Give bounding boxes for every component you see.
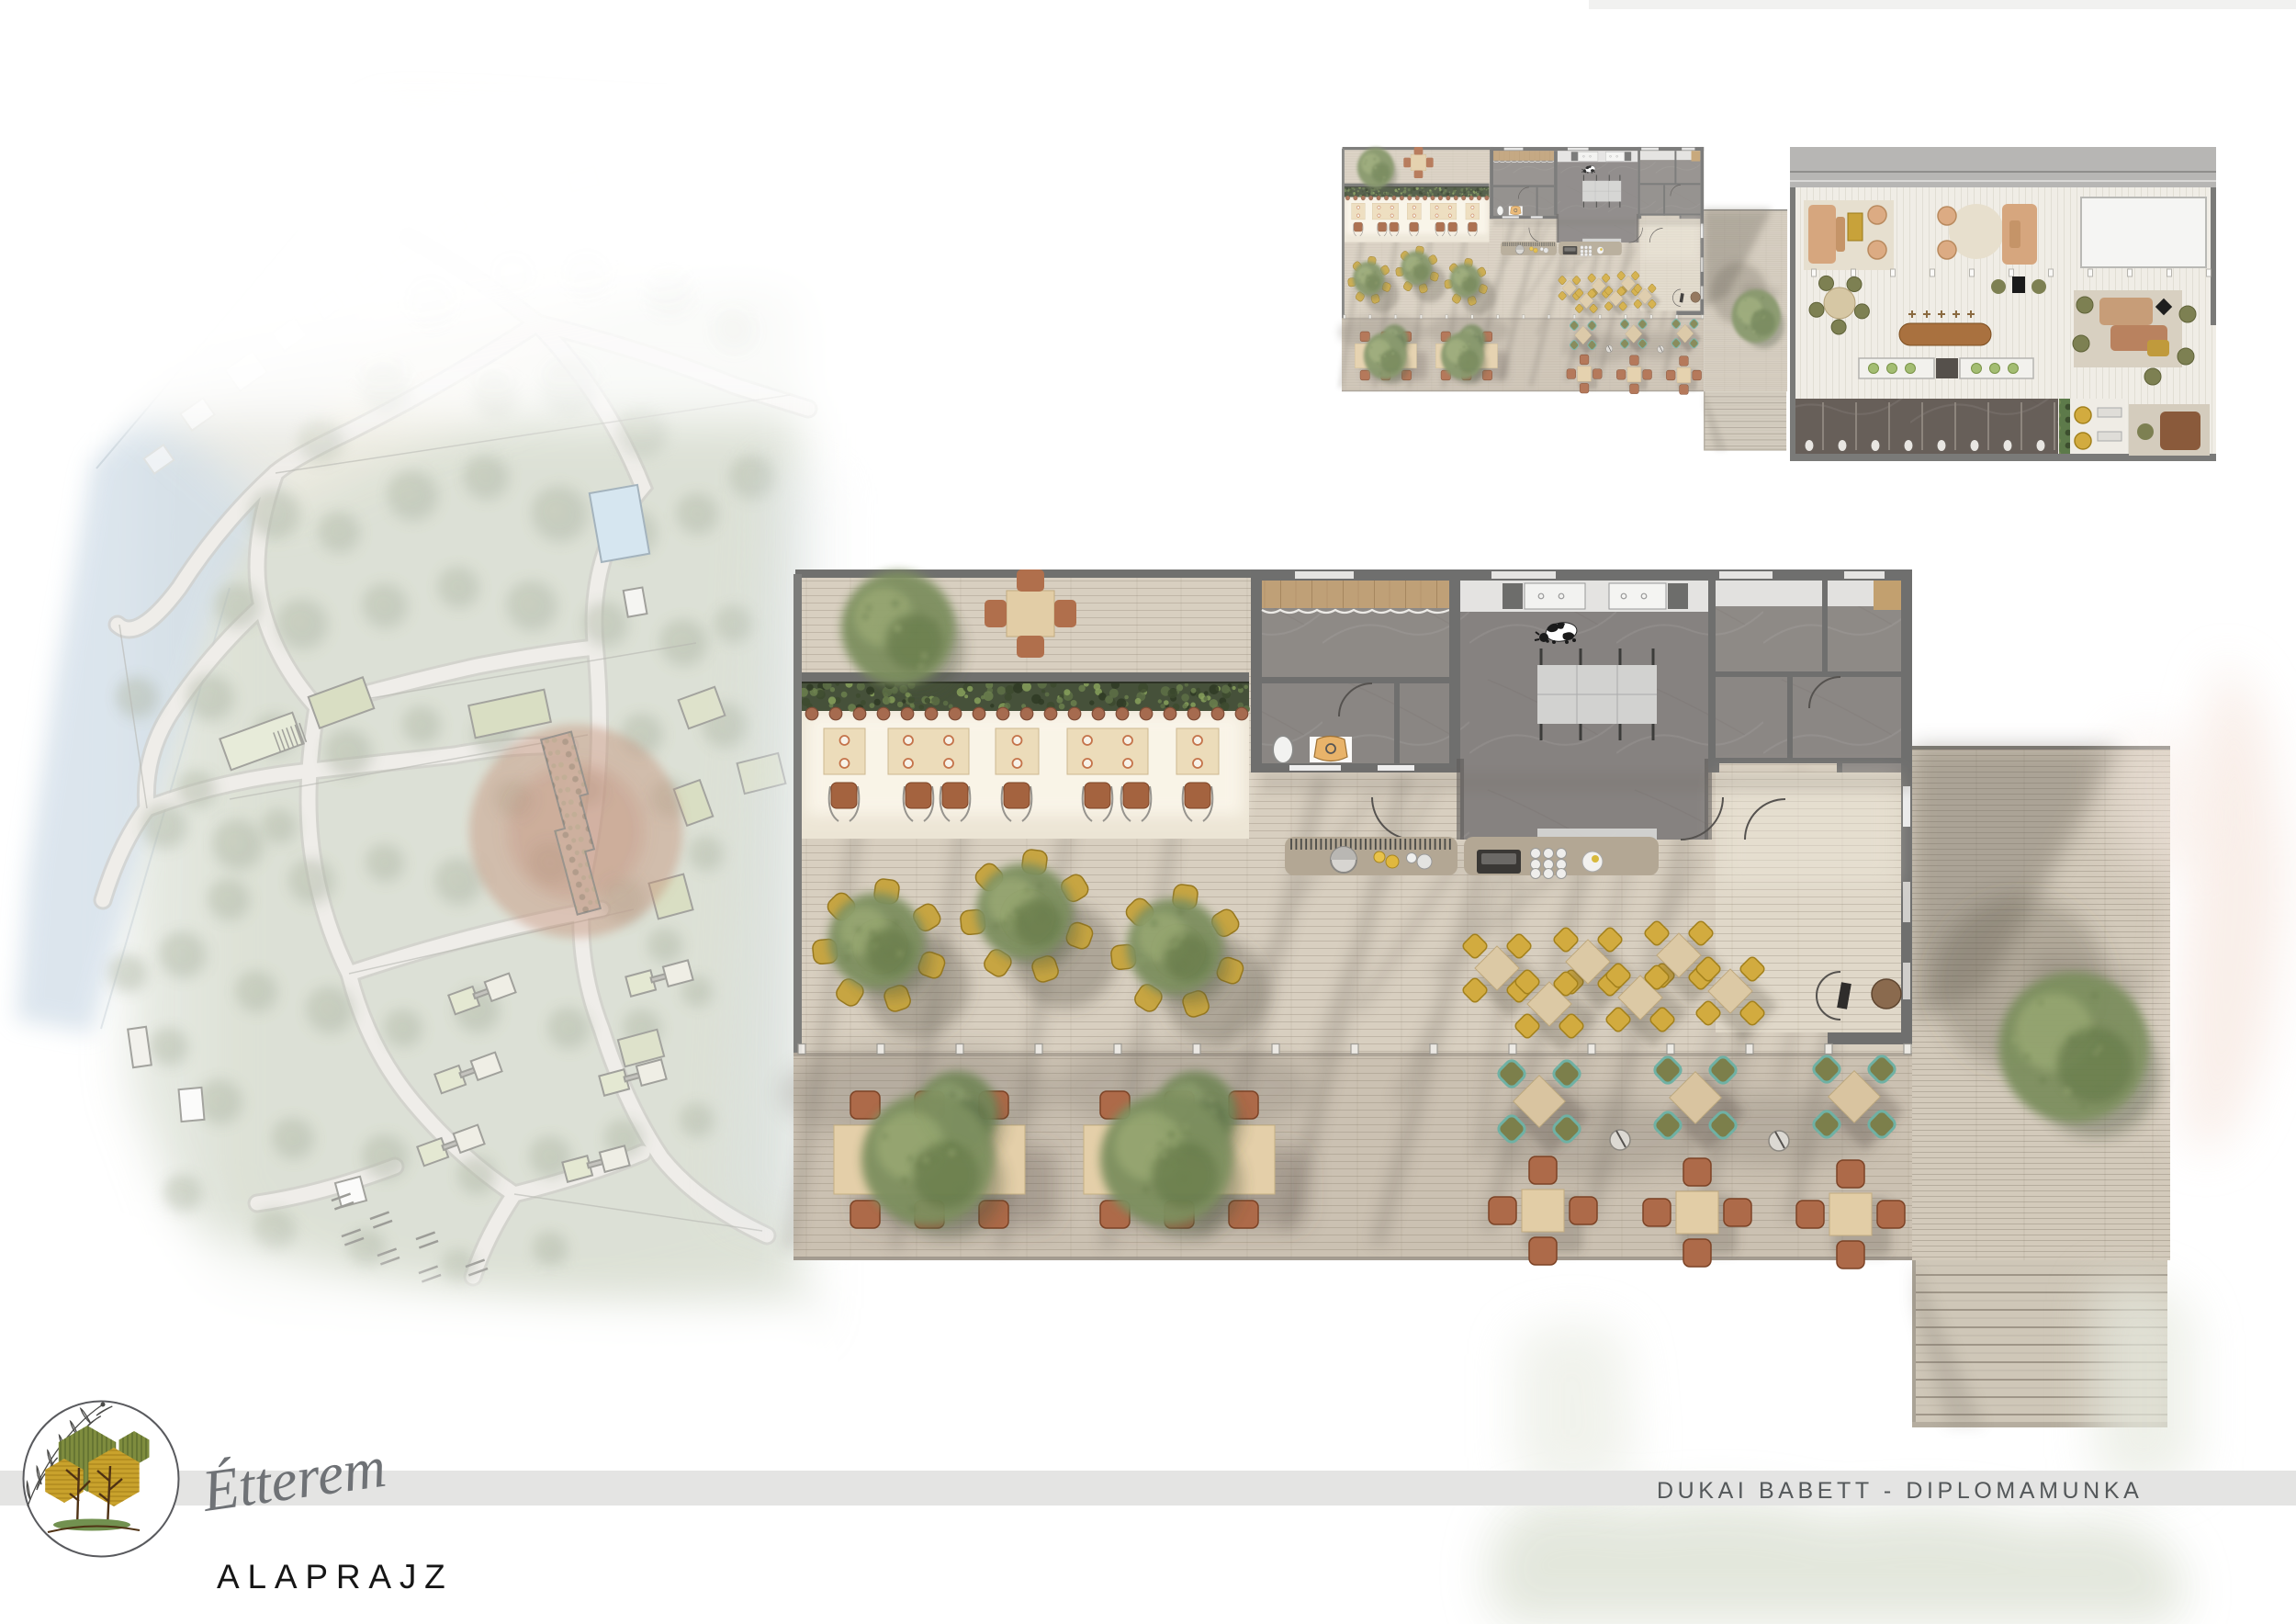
svg-text:ALAPRAJZ: ALAPRAJZ bbox=[217, 1558, 454, 1596]
svg-text:DUKAI BABETT - DIPLOMAMUNKA: DUKAI BABETT - DIPLOMAMUNKA bbox=[1657, 1478, 2143, 1504]
